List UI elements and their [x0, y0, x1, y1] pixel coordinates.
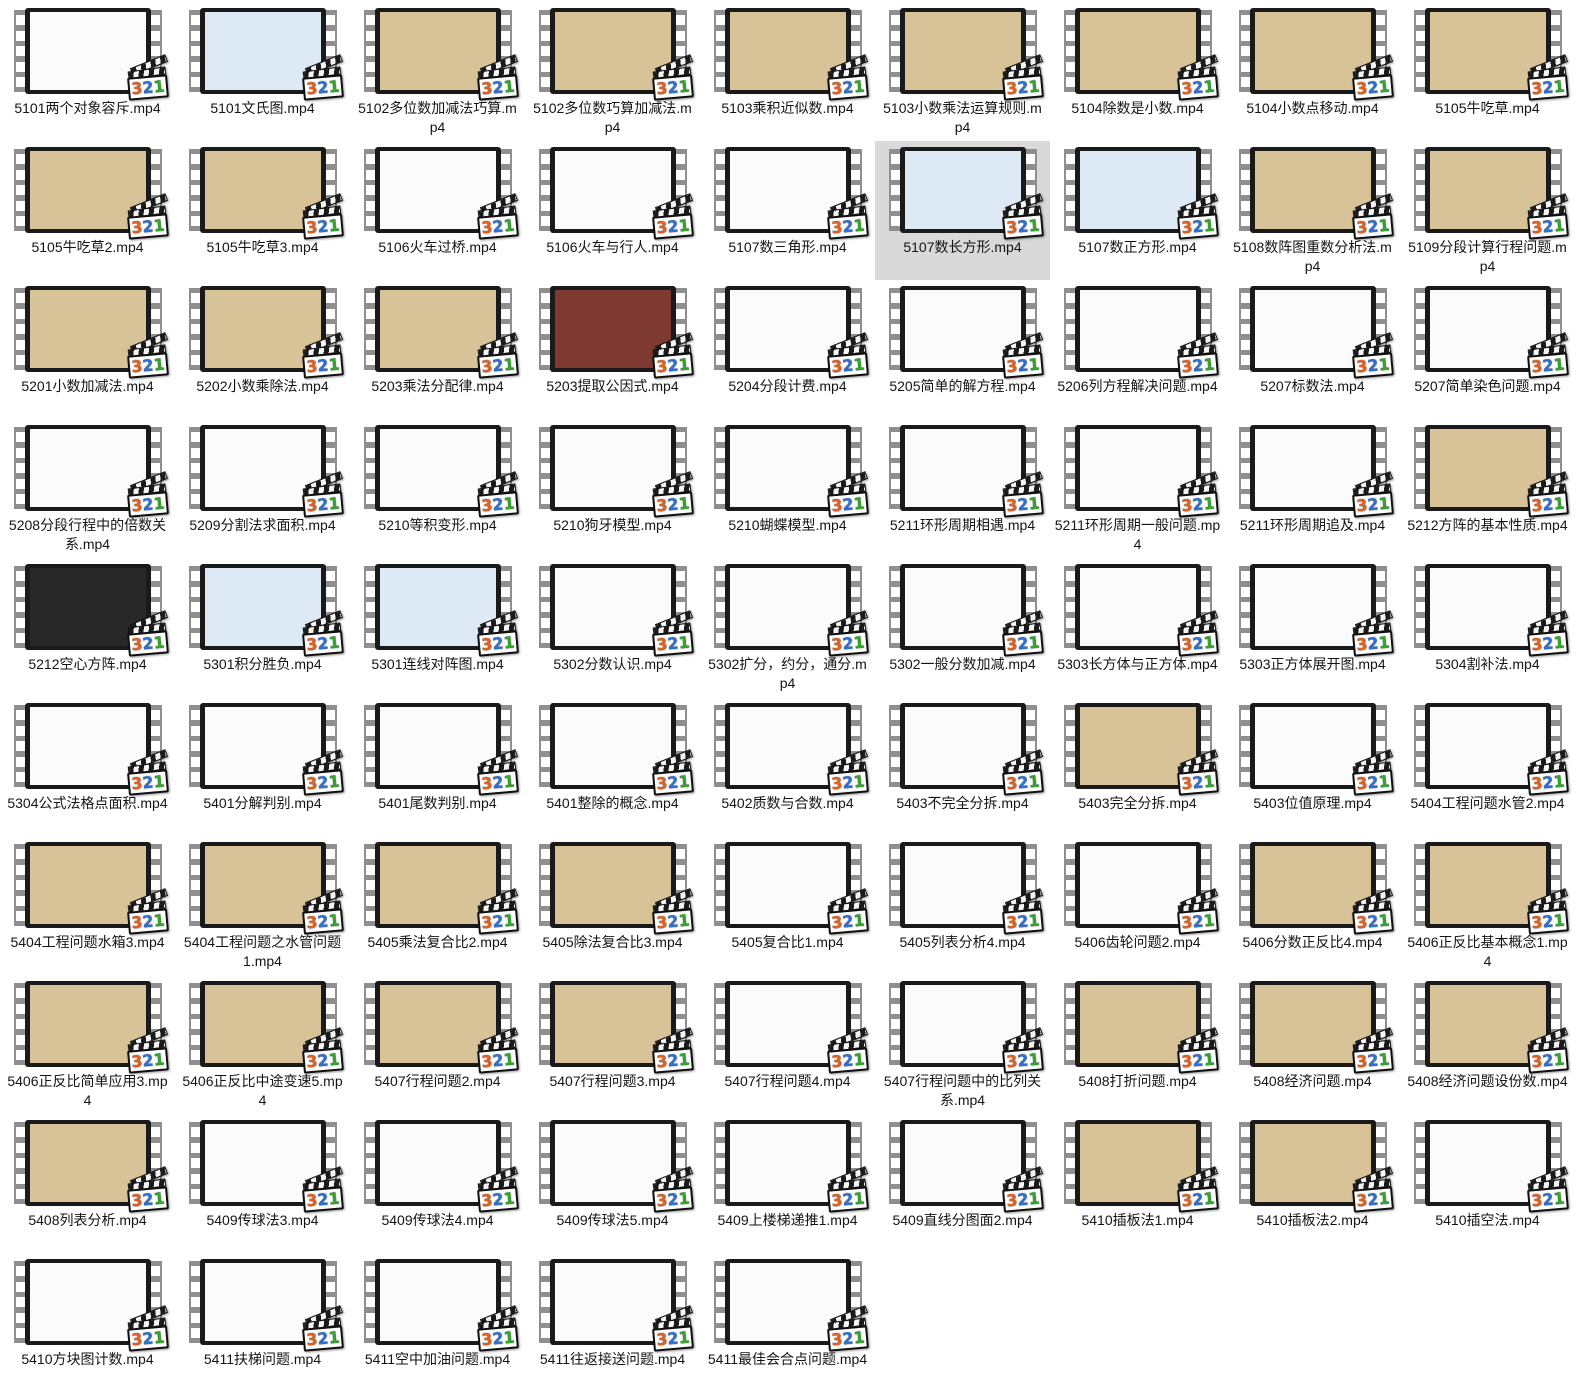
sprocket-hole: [500, 741, 510, 751]
mpc-321-label: 321: [127, 1186, 169, 1212]
file-item[interactable]: 3215304公式法格点面积.mp4: [0, 697, 175, 836]
video-thumbnail: 321: [889, 564, 1037, 650]
file-item[interactable]: 3215405乘法复合比2.mp4: [350, 836, 525, 975]
video-thumbnail: 321: [889, 8, 1037, 94]
video-thumbnail: 321: [189, 286, 337, 372]
mpc-321-label: 321: [302, 630, 344, 656]
mpc-321-label: 321: [1177, 769, 1219, 795]
mpc-clapperboard-icon: 321: [1172, 61, 1220, 99]
file-item[interactable]: 3215208分段行程中的倍数关系.mp4: [0, 419, 175, 558]
sprocket-hole: [850, 1127, 860, 1137]
file-item[interactable]: 3215401分解判别.mp4: [175, 697, 350, 836]
file-item[interactable]: 3215406齿轮问题2.mp4: [1050, 836, 1225, 975]
mpc-digit: 1: [677, 356, 689, 373]
mpc-clapperboard-icon: 321: [997, 1173, 1045, 1211]
file-item[interactable]: 3215405除法复合比3.mp4: [525, 836, 700, 975]
video-thumbnail: 321: [189, 703, 337, 789]
sprocket-hole: [675, 1266, 685, 1276]
video-thumbnail: 321: [14, 981, 162, 1067]
video-thumbnail: 321: [714, 564, 862, 650]
file-name-label: 5106火车过桥.mp4: [378, 238, 496, 257]
file-item[interactable]: 3215410方块图计数.mp4: [0, 1253, 175, 1392]
video-thumbnail: 321: [14, 286, 162, 372]
file-item[interactable]: 3215107数正方形.mp4: [1050, 141, 1225, 280]
file-item[interactable]: 3215204分段计费.mp4: [700, 280, 875, 419]
file-name-label: 5409直线分图面2.mp4: [892, 1211, 1032, 1230]
sprocket-hole: [325, 1282, 335, 1292]
mpc-321-label: 321: [652, 1047, 694, 1073]
file-item[interactable]: 3215410插板法2.mp4: [1225, 1114, 1400, 1253]
file-item[interactable]: 3215411往返接送问题.mp4: [525, 1253, 700, 1392]
mpc-clapperboard-icon: 321: [1522, 1173, 1570, 1211]
mpc-clapperboard-icon: 321: [1522, 61, 1570, 99]
mpc-digit: 2: [1541, 774, 1553, 791]
file-item[interactable]: 3215409传球法3.mp4: [175, 1114, 350, 1253]
sprocket-hole: [1200, 324, 1210, 334]
mpc-digit: 2: [1366, 1052, 1378, 1069]
mpc-digit: 1: [1027, 634, 1039, 651]
sprocket-hole: [850, 309, 860, 319]
file-item[interactable]: 3215407行程问题4.mp4: [700, 975, 875, 1114]
mpc-321-label: 321: [827, 908, 869, 934]
sprocket-hole: [1375, 15, 1385, 25]
sprocket-hole: [1200, 571, 1210, 581]
sprocket-hole: [150, 741, 160, 751]
sprocket-hole: [675, 448, 685, 458]
file-item[interactable]: 3215406正反比简单应用3.mp4: [0, 975, 175, 1114]
file-item[interactable]: 3215206列方程解决问题.mp4: [1050, 280, 1225, 419]
sprocket-hole: [1375, 1004, 1385, 1014]
sprocket-hole: [1550, 185, 1560, 195]
mpc-clapperboard-icon: 321: [472, 339, 520, 377]
mpc-clapperboard-icon: 321: [1522, 478, 1570, 516]
sprocket-hole: [1200, 865, 1210, 875]
file-item[interactable]: 3215410插板法1.mp4: [1050, 1114, 1225, 1253]
file-item[interactable]: 3215101两个对象容斥.mp4: [0, 2, 175, 141]
file-item[interactable]: 3215207标数法.mp4: [1225, 280, 1400, 419]
sprocket-hole: [1200, 1127, 1210, 1137]
file-item[interactable]: 3215104小数点移动.mp4: [1225, 2, 1400, 141]
sprocket-hole: [150, 587, 160, 597]
sprocket-hole: [1550, 293, 1560, 303]
file-name-label: 5405复合比1.mp4: [731, 933, 843, 952]
sprocket-hole: [150, 1004, 160, 1014]
sprocket-hole: [500, 571, 510, 581]
file-item[interactable]: 3215408打折问题.mp4: [1050, 975, 1225, 1114]
sprocket-hole: [1550, 602, 1560, 612]
mpc-clapperboard-icon: 321: [997, 478, 1045, 516]
file-item[interactable]: 3215210狗牙模型.mp4: [525, 419, 700, 558]
mpc-digit: 2: [316, 496, 328, 513]
file-item[interactable]: 3215106火车与行人.mp4: [525, 141, 700, 280]
file-item[interactable]: 3215405列表分析4.mp4: [875, 836, 1050, 975]
file-item[interactable]: 3215302扩分，约分，通分.mp4: [700, 558, 875, 697]
file-item[interactable]: 3215105牛吃草3.mp4: [175, 141, 350, 280]
mpc-digit: 1: [327, 1329, 339, 1346]
file-item[interactable]: 3215105牛吃草2.mp4: [0, 141, 175, 280]
mpc-clapperboard-icon: 321: [997, 895, 1045, 933]
mpc-321-label: 321: [1352, 352, 1394, 378]
sprocket-hole: [500, 726, 510, 736]
file-name-label: 5406正反比简单应用3.mp4: [5, 1072, 171, 1110]
mpc-clapperboard-icon: 321: [122, 1034, 170, 1072]
sprocket-hole: [1200, 154, 1210, 164]
file-item[interactable]: 3215301连线对阵图.mp4: [350, 558, 525, 697]
file-name-label: 5203提取公因式.mp4: [546, 377, 678, 396]
sprocket-hole: [1550, 1127, 1560, 1137]
mpc-digit: 2: [141, 1330, 153, 1347]
file-item[interactable]: 3215409传球法4.mp4: [350, 1114, 525, 1253]
file-name-label: 5108数阵图重数分析法.mp4: [1230, 238, 1396, 276]
sprocket-hole: [675, 1297, 685, 1307]
file-item[interactable]: 3215211环形周期相遇.mp4: [875, 419, 1050, 558]
mpc-digit: 2: [1541, 635, 1553, 652]
mpc-digit: 1: [502, 495, 514, 512]
file-item[interactable]: 3215411扶梯问题.mp4: [175, 1253, 350, 1392]
file-item[interactable]: 3215303正方体展开图.mp4: [1225, 558, 1400, 697]
file-item[interactable]: 3215407行程问题中的比列关系.mp4: [875, 975, 1050, 1114]
mpc-digit: 2: [491, 1330, 503, 1347]
sprocket-hole: [1200, 31, 1210, 41]
file-name-label: 5106火车与行人.mp4: [546, 238, 678, 257]
file-name-label: 5211环形周期追及.mp4: [1240, 516, 1385, 535]
mpc-digit: 1: [1202, 912, 1214, 929]
mpc-321-label: 321: [652, 769, 694, 795]
file-item[interactable]: 3215406分数正反比4.mp4: [1225, 836, 1400, 975]
sprocket-hole: [1200, 988, 1210, 998]
file-item[interactable]: 3215207简单染色问题.mp4: [1400, 280, 1575, 419]
file-item[interactable]: 3215406正反比基本概念1.mp4: [1400, 836, 1575, 975]
file-item[interactable]: 3215407行程问题3.mp4: [525, 975, 700, 1114]
mpc-321-label: 321: [1527, 908, 1569, 934]
sprocket-hole: [150, 31, 160, 41]
sprocket-hole: [675, 849, 685, 859]
mpc-clapperboard-icon: 321: [1347, 895, 1395, 933]
file-item[interactable]: 3215103小数乘法运算规则.mp4: [875, 2, 1050, 141]
file-item[interactable]: 3215404工程问题水管2.mp4: [1400, 697, 1575, 836]
video-thumbnail: 321: [1414, 981, 1562, 1067]
file-item[interactable]: 3215411空中加油问题.mp4: [350, 1253, 525, 1392]
mpc-321-label: 321: [827, 630, 869, 656]
file-name-label: 5411扶梯问题.mp4: [204, 1350, 321, 1369]
mpc-clapperboard-icon: 321: [297, 339, 345, 377]
mpc-clapperboard-icon: 321: [297, 756, 345, 794]
file-item[interactable]: 3215211环形周期一般问题.mp4: [1050, 419, 1225, 558]
sprocket-hole: [850, 571, 860, 581]
mpc-clapperboard-icon: 321: [472, 61, 520, 99]
file-name-label: 5403位值原理.mp4: [1253, 794, 1371, 813]
mpc-digit: 2: [1016, 357, 1028, 374]
mpc-digit: 1: [1027, 1051, 1039, 1068]
sprocket-hole: [325, 324, 335, 334]
mpc-clapperboard-icon: 321: [822, 478, 870, 516]
mpc-digit: 2: [1016, 1191, 1028, 1208]
mpc-digit: 2: [841, 913, 853, 930]
file-name-label: 5404工程问题之水管问题1.mp4: [180, 933, 346, 971]
sprocket-hole: [850, 15, 860, 25]
sprocket-hole: [675, 1158, 685, 1168]
mpc-digit: 2: [141, 635, 153, 652]
sprocket-hole: [1025, 726, 1035, 736]
file-item[interactable]: 3215106火车过桥.mp4: [350, 141, 525, 280]
mpc-clapperboard-icon: 321: [647, 200, 695, 238]
mpc-321-label: 321: [302, 213, 344, 239]
video-thumbnail: 321: [14, 425, 162, 511]
sprocket-hole: [675, 602, 685, 612]
sprocket-hole: [325, 1143, 335, 1153]
file-item[interactable]: 3215202小数乘除法.mp4: [175, 280, 350, 419]
file-item[interactable]: 3215211环形周期追及.mp4: [1225, 419, 1400, 558]
file-item[interactable]: 3215409传球法5.mp4: [525, 1114, 700, 1253]
file-name-label: 5104小数点移动.mp4: [1246, 99, 1378, 118]
mpc-321-label: 321: [1527, 352, 1569, 378]
mpc-clapperboard-icon: 321: [122, 1173, 170, 1211]
sprocket-hole: [325, 170, 335, 180]
mpc-321-label: 321: [1352, 908, 1394, 934]
file-item[interactable]: 3215304割补法.mp4: [1400, 558, 1575, 697]
file-name-label: 5101两个对象容斥.mp4: [14, 99, 160, 118]
sprocket-hole: [500, 602, 510, 612]
mpc-clapperboard-icon: 321: [472, 1312, 520, 1350]
sprocket-hole: [500, 1004, 510, 1014]
file-name-label: 5302分数认识.mp4: [553, 655, 671, 674]
sprocket-hole: [850, 741, 860, 751]
sprocket-hole: [1375, 1143, 1385, 1153]
sprocket-hole: [1375, 880, 1385, 890]
video-thumbnail: 321: [1064, 842, 1212, 928]
file-name-label: 5304割补法.mp4: [1435, 655, 1539, 674]
file-item[interactable]: 3215209分割法求面积.mp4: [175, 419, 350, 558]
mpc-321-label: 321: [827, 352, 869, 378]
video-thumbnail: 321: [539, 286, 687, 372]
sprocket-hole: [1550, 1019, 1560, 1029]
sprocket-hole: [325, 448, 335, 458]
mpc-clapperboard-icon: 321: [647, 617, 695, 655]
sprocket-hole: [150, 309, 160, 319]
mpc-digit: 2: [666, 913, 678, 930]
mpc-digit: 1: [677, 78, 689, 95]
file-item[interactable]: 3215107数三角形.mp4: [700, 141, 875, 280]
file-item[interactable]: 3215403完全分拆.mp4: [1050, 697, 1225, 836]
mpc-digit: 2: [1366, 913, 1378, 930]
file-item[interactable]: 3215403位值原理.mp4: [1225, 697, 1400, 836]
file-name-label: 5109分段计算行程问题.mp4: [1405, 238, 1571, 276]
sprocket-hole: [1025, 15, 1035, 25]
mpc-digit: 2: [1541, 913, 1553, 930]
file-item[interactable]: 3215407行程问题2.mp4: [350, 975, 525, 1114]
file-item[interactable]: 3215404工程问题水箱3.mp4: [0, 836, 175, 975]
mpc-digit: 2: [841, 774, 853, 791]
file-item[interactable]: 3215302分数认识.mp4: [525, 558, 700, 697]
mpc-digit: 1: [502, 1190, 514, 1207]
sprocket-hole: [150, 432, 160, 442]
sprocket-hole: [850, 587, 860, 597]
file-item[interactable]: 3215105牛吃草.mp4: [1400, 2, 1575, 141]
mpc-clapperboard-icon: 321: [1347, 1173, 1395, 1211]
mpc-321-label: 321: [1177, 630, 1219, 656]
file-item[interactable]: 3215409上楼梯递推1.mp4: [700, 1114, 875, 1253]
file-name-label: 5202小数乘除法.mp4: [196, 377, 328, 396]
file-item[interactable]: 3215408经济问题.mp4: [1225, 975, 1400, 1114]
mpc-digit: 1: [1552, 773, 1564, 790]
sprocket-hole: [1375, 602, 1385, 612]
mpc-digit: 1: [1377, 217, 1389, 234]
file-item[interactable]: 3215107数长方形.mp4: [875, 141, 1050, 280]
sprocket-hole: [675, 463, 685, 473]
mpc-digit: 2: [316, 79, 328, 96]
file-item[interactable]: 3215401尾数判别.mp4: [350, 697, 525, 836]
sprocket-hole: [675, 293, 685, 303]
mpc-321-label: 321: [477, 1325, 519, 1351]
file-name-label: 5211环形周期相遇.mp4: [890, 516, 1035, 535]
mpc-321-label: 321: [1177, 908, 1219, 934]
sprocket-hole: [1550, 865, 1560, 875]
file-name-label: 5410插空法.mp4: [1435, 1211, 1539, 1230]
mpc-clapperboard-icon: 321: [1347, 1034, 1395, 1072]
mpc-321-label: 321: [477, 908, 519, 934]
mpc-digit: 1: [1202, 217, 1214, 234]
file-item[interactable]: 3215205简单的解方程.mp4: [875, 280, 1050, 419]
sprocket-hole: [325, 571, 335, 581]
mpc-digit: 1: [677, 912, 689, 929]
mpc-clapperboard-icon: 321: [822, 895, 870, 933]
file-item[interactable]: 3215203提取公因式.mp4: [525, 280, 700, 419]
video-thumbnail: 321: [14, 564, 162, 650]
mpc-digit: 1: [152, 217, 164, 234]
mpc-digit: 2: [841, 496, 853, 513]
file-name-label: 5401分解判别.mp4: [203, 794, 321, 813]
mpc-321-label: 321: [127, 74, 169, 100]
file-item[interactable]: 3215102多位数巧算加减法.mp4: [525, 2, 700, 141]
mpc-clapperboard-icon: 321: [647, 339, 695, 377]
file-item[interactable]: 3215405复合比1.mp4: [700, 836, 875, 975]
file-item[interactable]: 3215102多位数加减法巧算.mp4: [350, 2, 525, 141]
sprocket-hole: [850, 31, 860, 41]
sprocket-hole: [150, 726, 160, 736]
mpc-digit: 1: [677, 1329, 689, 1346]
file-item[interactable]: 3215212方阵的基本性质.mp4: [1400, 419, 1575, 558]
file-item[interactable]: 3215201小数加减法.mp4: [0, 280, 175, 419]
mpc-321-label: 321: [1177, 74, 1219, 100]
file-item[interactable]: 3215401整除的概念.mp4: [525, 697, 700, 836]
mpc-digit: 1: [1202, 1051, 1214, 1068]
file-name-label: 5301积分胜负.mp4: [203, 655, 321, 674]
sprocket-hole: [1200, 15, 1210, 25]
sprocket-hole: [1375, 293, 1385, 303]
mpc-digit: 1: [1377, 1051, 1389, 1068]
mpc-digit: 2: [491, 496, 503, 513]
sprocket-hole: [1550, 726, 1560, 736]
mpc-321-label: 321: [652, 74, 694, 100]
file-item[interactable]: 3215104除数是小数.mp4: [1050, 2, 1225, 141]
mpc-digit: 1: [502, 356, 514, 373]
mpc-digit: 1: [1202, 495, 1214, 512]
file-item[interactable]: 3215406正反比中途变速5.mp4: [175, 975, 350, 1114]
mpc-digit: 2: [841, 1191, 853, 1208]
mpc-321-label: 321: [827, 74, 869, 100]
video-thumbnail: 321: [539, 842, 687, 928]
file-item[interactable]: 3215103乘积近似数.mp4: [700, 2, 875, 141]
file-item[interactable]: 3215301积分胜负.mp4: [175, 558, 350, 697]
mpc-clapperboard-icon: 321: [822, 1034, 870, 1072]
file-name-label: 5208分段行程中的倍数关系.mp4: [5, 516, 171, 554]
file-name-label: 5410插板法1.mp4: [1081, 1211, 1193, 1230]
mpc-clapperboard-icon: 321: [1522, 200, 1570, 238]
mpc-clapperboard-icon: 321: [1347, 61, 1395, 99]
sprocket-hole: [1200, 587, 1210, 597]
file-item[interactable]: 3215101文氏图.mp4: [175, 2, 350, 141]
file-item[interactable]: 3215210蝴蝶模型.mp4: [700, 419, 875, 558]
mpc-clapperboard-icon: 321: [647, 1034, 695, 1072]
file-item[interactable]: 3215203乘法分配律.mp4: [350, 280, 525, 419]
file-item[interactable]: 3215404工程问题之水管问题1.mp4: [175, 836, 350, 975]
mpc-digit: 1: [1027, 773, 1039, 790]
mpc-digit: 2: [1366, 357, 1378, 374]
sprocket-hole: [850, 1266, 860, 1276]
file-item[interactable]: 3215210等积变形.mp4: [350, 419, 525, 558]
file-item[interactable]: 3215402质数与合数.mp4: [700, 697, 875, 836]
sprocket-hole: [1200, 602, 1210, 612]
file-name-label: 5404工程问题水箱3.mp4: [10, 933, 164, 952]
mpc-digit: 1: [152, 1190, 164, 1207]
sprocket-hole: [500, 710, 510, 720]
mpc-digit: 2: [1541, 357, 1553, 374]
mpc-digit: 1: [852, 634, 864, 651]
file-name-label: 5212方阵的基本性质.mp4: [1407, 516, 1567, 535]
sprocket-hole: [1025, 710, 1035, 720]
mpc-digit: 2: [1541, 1191, 1553, 1208]
mpc-digit: 1: [1552, 78, 1564, 95]
sprocket-hole: [325, 154, 335, 164]
sprocket-hole: [150, 1019, 160, 1029]
mpc-digit: 2: [491, 1191, 503, 1208]
mpc-321-label: 321: [127, 1325, 169, 1351]
file-item[interactable]: 3215212空心方阵.mp4: [0, 558, 175, 697]
video-thumbnail: 321: [1239, 703, 1387, 789]
video-thumbnail: 321: [539, 1120, 687, 1206]
mpc-321-label: 321: [827, 1047, 869, 1073]
file-name-label: 5205简单的解方程.mp4: [889, 377, 1035, 396]
file-item[interactable]: 3215408列表分析.mp4: [0, 1114, 175, 1253]
mpc-digit: 2: [666, 1191, 678, 1208]
video-thumbnail: 321: [189, 981, 337, 1067]
sprocket-hole: [325, 293, 335, 303]
mpc-321-label: 321: [302, 74, 344, 100]
file-item[interactable]: 3215409直线分图面2.mp4: [875, 1114, 1050, 1253]
mpc-321-label: 321: [302, 352, 344, 378]
file-item[interactable]: 3215109分段计算行程问题.mp4: [1400, 141, 1575, 280]
file-item[interactable]: 3215411最佳会合点问题.mp4: [700, 1253, 875, 1392]
file-item[interactable]: 3215302一般分数加减.mp4: [875, 558, 1050, 697]
mpc-digit: 2: [1541, 79, 1553, 96]
mpc-321-label: 321: [1002, 74, 1044, 100]
sprocket-hole: [500, 463, 510, 473]
file-name-label: 5405乘法复合比2.mp4: [367, 933, 507, 952]
file-item[interactable]: 3215403不完全分拆.mp4: [875, 697, 1050, 836]
sprocket-hole: [1025, 602, 1035, 612]
mpc-digit: 1: [327, 495, 339, 512]
file-item[interactable]: 3215410插空法.mp4: [1400, 1114, 1575, 1253]
file-item[interactable]: 3215408经济问题设份数.mp4: [1400, 975, 1575, 1114]
file-item[interactable]: 3215108数阵图重数分析法.mp4: [1225, 141, 1400, 280]
sprocket-hole: [150, 710, 160, 720]
mpc-digit: 2: [1366, 496, 1378, 513]
mpc-clapperboard-icon: 321: [472, 200, 520, 238]
mpc-digit: 2: [841, 218, 853, 235]
file-item[interactable]: 3215303长方体与正方体.mp4: [1050, 558, 1225, 697]
mpc-digit: 2: [316, 1330, 328, 1347]
mpc-digit: 2: [1191, 913, 1203, 930]
